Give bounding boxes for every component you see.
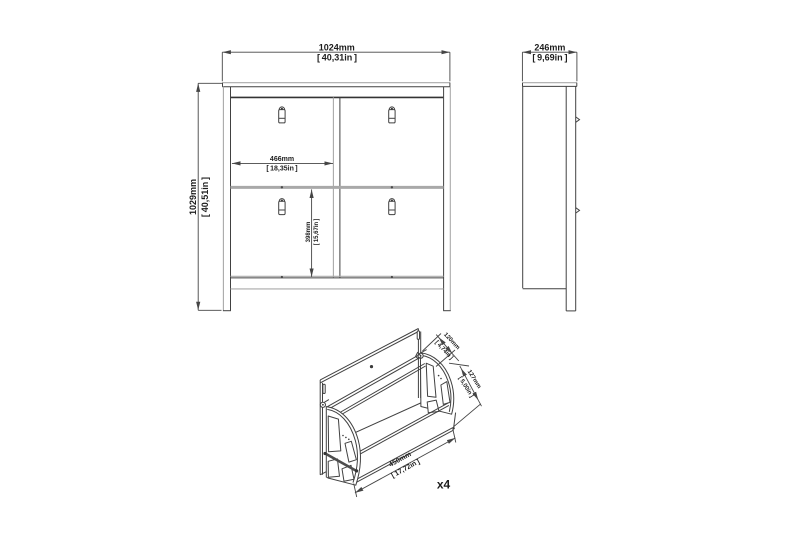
svg-text:398mm: 398mm xyxy=(306,222,312,243)
svg-text:1029mm: 1029mm xyxy=(188,179,198,215)
svg-text:466mm: 466mm xyxy=(270,156,294,163)
svg-text:1024mm: 1024mm xyxy=(319,42,355,52)
svg-text:[ 40,51in ]: [ 40,51in ] xyxy=(200,177,210,217)
svg-text:[ 15,67in ]: [ 15,67in ] xyxy=(314,219,320,246)
svg-text:[ 40,31in ]: [ 40,31in ] xyxy=(317,53,357,63)
svg-text:[ 18,35in ]: [ 18,35in ] xyxy=(266,165,297,172)
svg-text:[ 9,69in ]: [ 9,69in ] xyxy=(532,53,567,63)
svg-text:x4: x4 xyxy=(437,478,451,492)
svg-text:246mm: 246mm xyxy=(534,42,565,52)
